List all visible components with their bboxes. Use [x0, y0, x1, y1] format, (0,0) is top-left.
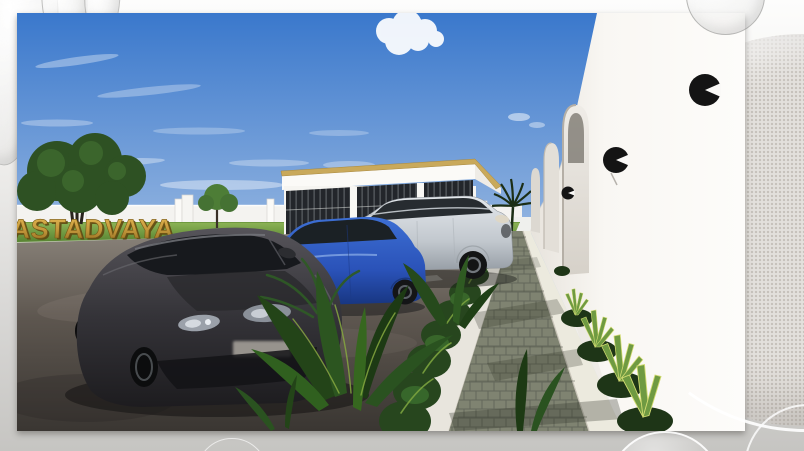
slide-stage: ASTADVAYA ASTADVAYA [0, 0, 804, 451]
glass-arc-ornament-bottom-left [196, 438, 268, 451]
glass-arc-ornament-bottom-center [608, 431, 722, 451]
wall-lamp-far [562, 187, 575, 200]
